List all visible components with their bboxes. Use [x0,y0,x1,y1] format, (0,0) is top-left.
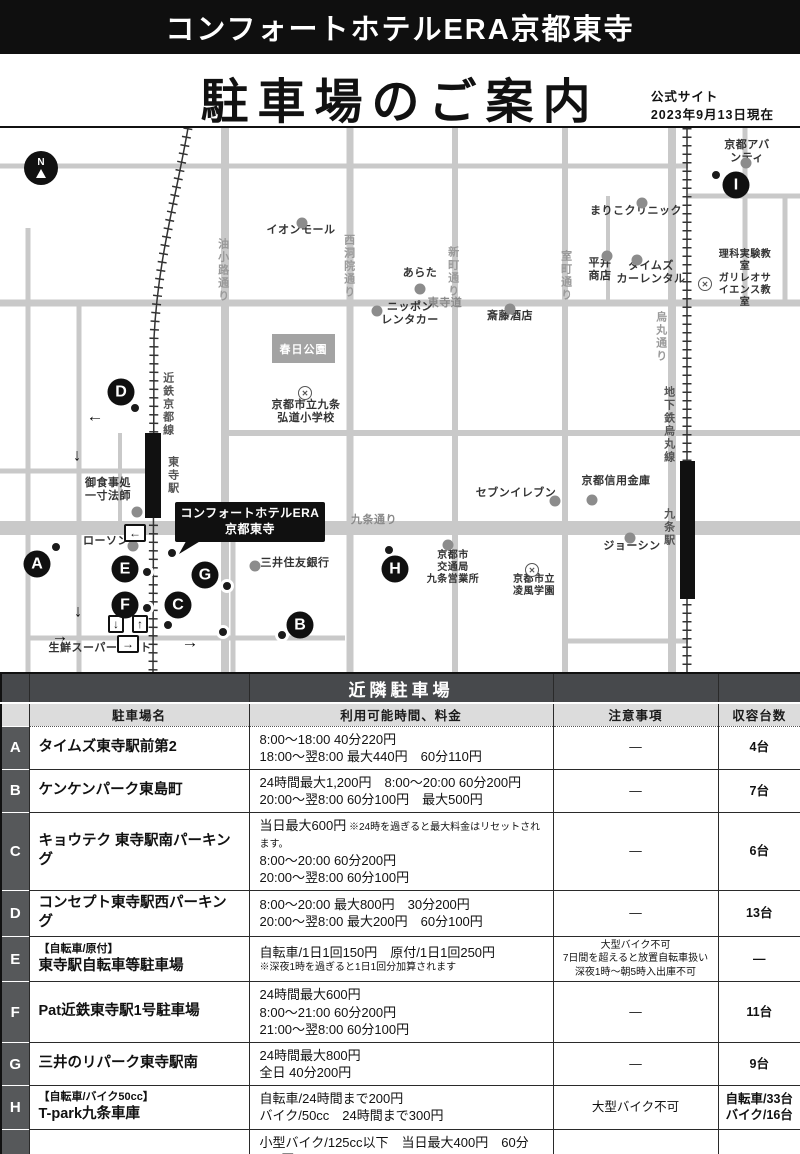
one-way-arrow-icon: ← [87,408,104,425]
poi-dot [741,158,752,169]
parking-spot-dot [128,401,142,415]
cell-capacity: ― [718,1129,800,1154]
table-title: 近隣駐車場 [249,673,553,703]
table-row-D: Dコンセプト東寺駅西パーキング8:00〜20:00 最大800円 30分200円… [1,890,800,936]
one-way-arrow-icon: ↓ [74,603,83,620]
cell-notes: 大型バイク不可7日間を超えると放置自転車扱い深夜1時〜朝5時入出庫不可 [553,936,718,982]
cell-notes: 大型バイク不可 [553,1086,718,1129]
map-marker-E: E [112,556,139,583]
cell-capacity: 4台 [718,726,800,769]
parking-table: 近隣駐車場 駐車場名 利用可能時間、料金 注意事項 収容台数 Aタイムズ東寺駅前… [0,672,800,1154]
poi-dot [505,304,516,315]
map-label: 烏丸通り [653,311,666,363]
cell-hours: 当日最大600円 ※24時を過ぎると最大料金はリセットされます。8:00〜20:… [249,813,553,891]
cell-capacity: 7台 [718,769,800,812]
park-box: 春日公園 [272,334,335,363]
date-note: 2023年9月13日現在 [651,106,774,124]
col-header-capacity: 収容台数 [718,703,800,726]
table-row-H: H【自転車/バイク50cc】T-park九条車庫自転車/24時間まで200円バイ… [1,1086,800,1129]
school-icon: ✕ [698,277,712,291]
cell-notes: ― [553,726,718,769]
cell-notes: ― [553,813,718,891]
school-icon: ✕ [525,563,539,577]
map-label: 油小路通り [215,238,228,303]
poi-dot [443,540,454,551]
cell-name: コンセプト東寺駅西パーキング [29,890,249,936]
poi-dot [372,306,383,317]
hotel-name-bar: コンフォートホテルERA京都東寺 [0,0,800,54]
hotel-name: コンフォートホテルERA京都東寺 [165,6,634,48]
table-row-A: Aタイムズ東寺駅前第28:00〜18:00 40分220円18:00〜翌8:00… [1,726,800,769]
parking-table-body: Aタイムズ東寺駅前第28:00〜18:00 40分220円18:00〜翌8:00… [1,726,800,1154]
cell-capacity: 11台 [718,982,800,1042]
row-letter-B: B [1,769,29,812]
poi-dot [415,284,426,295]
map-label: ニッポン レンタカー [381,301,439,327]
cell-notes: ― [553,982,718,1042]
one-way-arrow-icon: ↓ [73,447,82,464]
cell-notes: ― [553,769,718,812]
cell-hours: 24時間最大1,200円 8:00〜20:00 60分200円20:00〜翌8:… [249,769,553,812]
parking-spot-dot [140,565,154,579]
cell-hours: 24時間最大800円全日 40分200円 [249,1042,553,1085]
kujo-station-rect [680,461,695,599]
row-letter-G: G [1,1042,29,1085]
map-label: 地下鉄烏丸線 [661,386,674,464]
official-site-note: 公式サイト [651,88,774,106]
cell-capacity: 13台 [718,890,800,936]
map-label: 九条通り [351,514,397,527]
poi-dot [587,495,598,506]
col-header-notes: 注意事項 [553,703,718,726]
map-label: 三井住友銀行 [261,557,330,570]
poi-dot [550,496,561,507]
map-marker-D: D [108,379,135,406]
map-label: 新町通り [445,246,458,298]
hotel-callout-line1: コンフォートホテルERA [177,506,323,522]
table-header-row: 駐車場名 利用可能時間、料金 注意事項 収容台数 [1,703,800,726]
map-label: ローソン [83,535,129,548]
row-letter-E: E [1,936,29,982]
title-side-note: 公式サイト 2023年9月13日現在 [651,88,774,124]
subway-karasuma-line [680,128,695,672]
map-label: 京都市立 凌風学園 [513,574,555,598]
parking-spot-dot [216,625,230,639]
table-row-I: I【バイク小型/大型】京都アバンティ駐車場小型バイク/125cc以下 当日最大4… [1,1129,800,1154]
cell-capacity: 9台 [718,1042,800,1085]
map-label: 東寺駅 [165,456,178,495]
col-header-hours: 利用可能時間、料金 [249,703,553,726]
map-marker-C: C [165,592,192,619]
map-label: タイムズ カーレンタル [617,260,686,286]
table-row-B: Bケンケンパーク東島町24時間最大1,200円 8:00〜20:00 60分20… [1,769,800,812]
one-way-arrow-icon: → [182,634,199,651]
parking-spot-dot [140,601,154,615]
cell-name: ケンケンパーク東島町 [29,769,249,812]
hotel-callout-line2: 京都東寺 [177,522,323,538]
poi-dot [132,507,143,518]
map-marker-A: A [24,551,51,578]
row-letter-A: A [1,726,29,769]
cell-capacity: ― [718,936,800,982]
one-way-arrow-icon: ↑ [132,615,148,633]
page: コンフォートホテルERA京都東寺 駐車場のご案内 公式サイト 2023年9月13… [0,0,800,1154]
map-label: 京都信用金庫 [582,475,651,488]
map-label: セブンイレブン [476,487,557,500]
cell-name: キョウテク 東寺駅南パーキング [29,813,249,891]
row-letter-I: I [1,1129,29,1154]
parking-spot-dot [49,540,63,554]
toji-station-rect [145,433,161,518]
cell-hours: 8:00〜18:00 40分220円18:00〜翌8:00 最大440円 60分… [249,726,553,769]
table-title-row: 近隣駐車場 [1,673,800,703]
poi-dot [250,561,261,572]
map-label: 京都市立九条 弘道小学校 [272,399,341,425]
table-row-E: E【自転車/原付】東寺駅自転車等駐車場自転車/1日1回150円 原付/1日1回2… [1,936,800,982]
map: N 春日公園 コンフォートホテルERA 京都東寺 ✕✕✕油小路通り西洞院通り新町… [0,128,800,672]
cell-name: タイムズ東寺駅前第2 [29,726,249,769]
school-icon: ✕ [298,386,312,400]
map-label: 京都市 交通局 九条営業所 [427,550,480,586]
one-way-arrow-icon: → [117,635,139,653]
table-row-C: Cキョウテク 東寺駅南パーキング当日最大600円 ※24時を過ぎると最大料金はリ… [1,813,800,891]
cell-hours: 自転車/1日1回150円 原付/1日1回250円※深夜1時を過ぎると1日1回分加… [249,936,553,982]
title-block: 駐車場のご案内 公式サイト 2023年9月13日現在 [0,54,800,128]
map-label: 近鉄京都線 [160,372,173,437]
compass-n-label: N [37,158,44,168]
map-label: 理科実験教室 ガリレオサイエンス教室 [718,249,773,309]
map-label: あらた [403,267,438,280]
cell-hours: 小型バイク/125cc以下 当日最大400円 60分100円大型バイク/125c… [249,1129,553,1154]
map-marker-I: I [723,172,750,199]
map-marker-B: B [287,612,314,639]
poi-dot [625,533,636,544]
cell-name: Pat近鉄東寺駅1号駐車場 [29,982,249,1042]
map-label: 西洞院通り [341,234,354,299]
table-row-G: G三井のリパーク東寺駅南24時間最大800円全日 40分200円―9台 [1,1042,800,1085]
row-letter-H: H [1,1086,29,1129]
map-label: まりこクリニック [590,205,682,218]
map-marker-G: G [192,562,219,589]
row-letter-D: D [1,890,29,936]
cell-hours: 24時間最大600円8:00〜21:00 60分200円21:00〜翌8:00 … [249,982,553,1042]
cell-name: 【自転車/原付】東寺駅自転車等駐車場 [29,936,249,982]
row-letter-C: C [1,813,29,891]
hotel-callout: コンフォートホテルERA 京都東寺 [175,502,325,542]
table-row-F: FPat近鉄東寺駅1号駐車場24時間最大600円8:00〜21:00 60分20… [1,982,800,1042]
poi-dot [602,251,613,262]
compass-arrow-icon [36,169,46,178]
parking-spot-dot [709,168,723,182]
one-way-arrow-icon: → [52,628,69,645]
cell-name: 三井のリパーク東寺駅南 [29,1042,249,1085]
cell-capacity: 自転車/33台バイク/16台 [718,1086,800,1129]
map-marker-F: F [112,592,139,619]
one-way-arrow-icon: ← [124,524,146,542]
cell-name: 【バイク小型/大型】京都アバンティ駐車場 [29,1129,249,1154]
poi-dot [632,255,643,266]
cell-hours: 自転車/24時間まで200円バイク/50cc 24時間まで300円 [249,1086,553,1129]
map-label: 御食事処 一寸法師 [85,477,131,503]
map-label: 九条駅 [661,508,674,547]
poi-dot [637,198,648,209]
row-letter-F: F [1,982,29,1042]
poi-dot [128,541,139,552]
cell-name: 【自転車/バイク50cc】T-park九条車庫 [29,1086,249,1129]
cell-hours: 8:00〜20:00 最大800円 30分200円20:00〜翌8:00 最大2… [249,890,553,936]
compass-icon: N [24,151,58,185]
cell-notes: ― [553,1129,718,1154]
parking-spot-dot [220,579,234,593]
cell-notes: ― [553,890,718,936]
col-header-name: 駐車場名 [29,703,249,726]
cell-capacity: 6台 [718,813,800,891]
map-marker-H: H [382,556,409,583]
parking-spot-dot [165,546,179,560]
cell-notes: ― [553,1042,718,1085]
parking-spot-dot [161,618,175,632]
map-label: 室町通り [558,250,571,302]
poi-dot [297,218,308,229]
